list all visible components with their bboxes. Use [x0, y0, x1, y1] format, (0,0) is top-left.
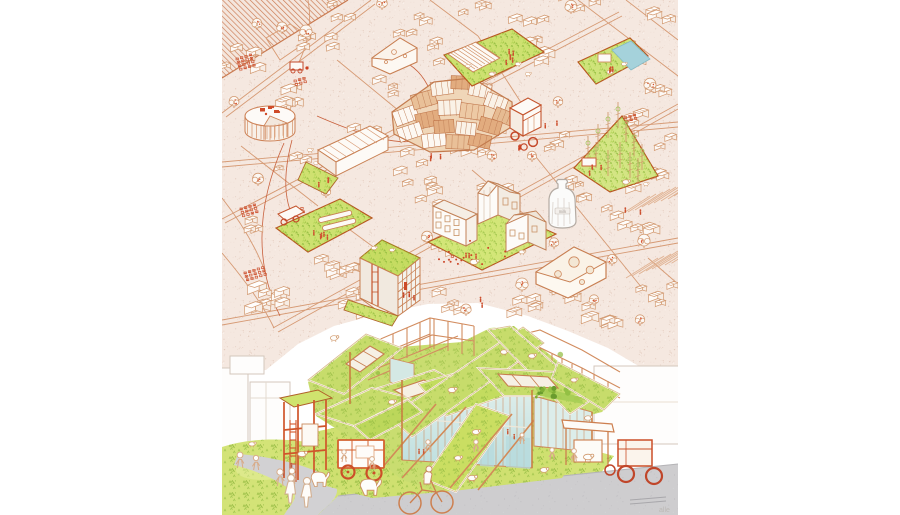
svg-text:milk: milk [559, 209, 567, 214]
svg-text:alle: alle [659, 507, 670, 514]
